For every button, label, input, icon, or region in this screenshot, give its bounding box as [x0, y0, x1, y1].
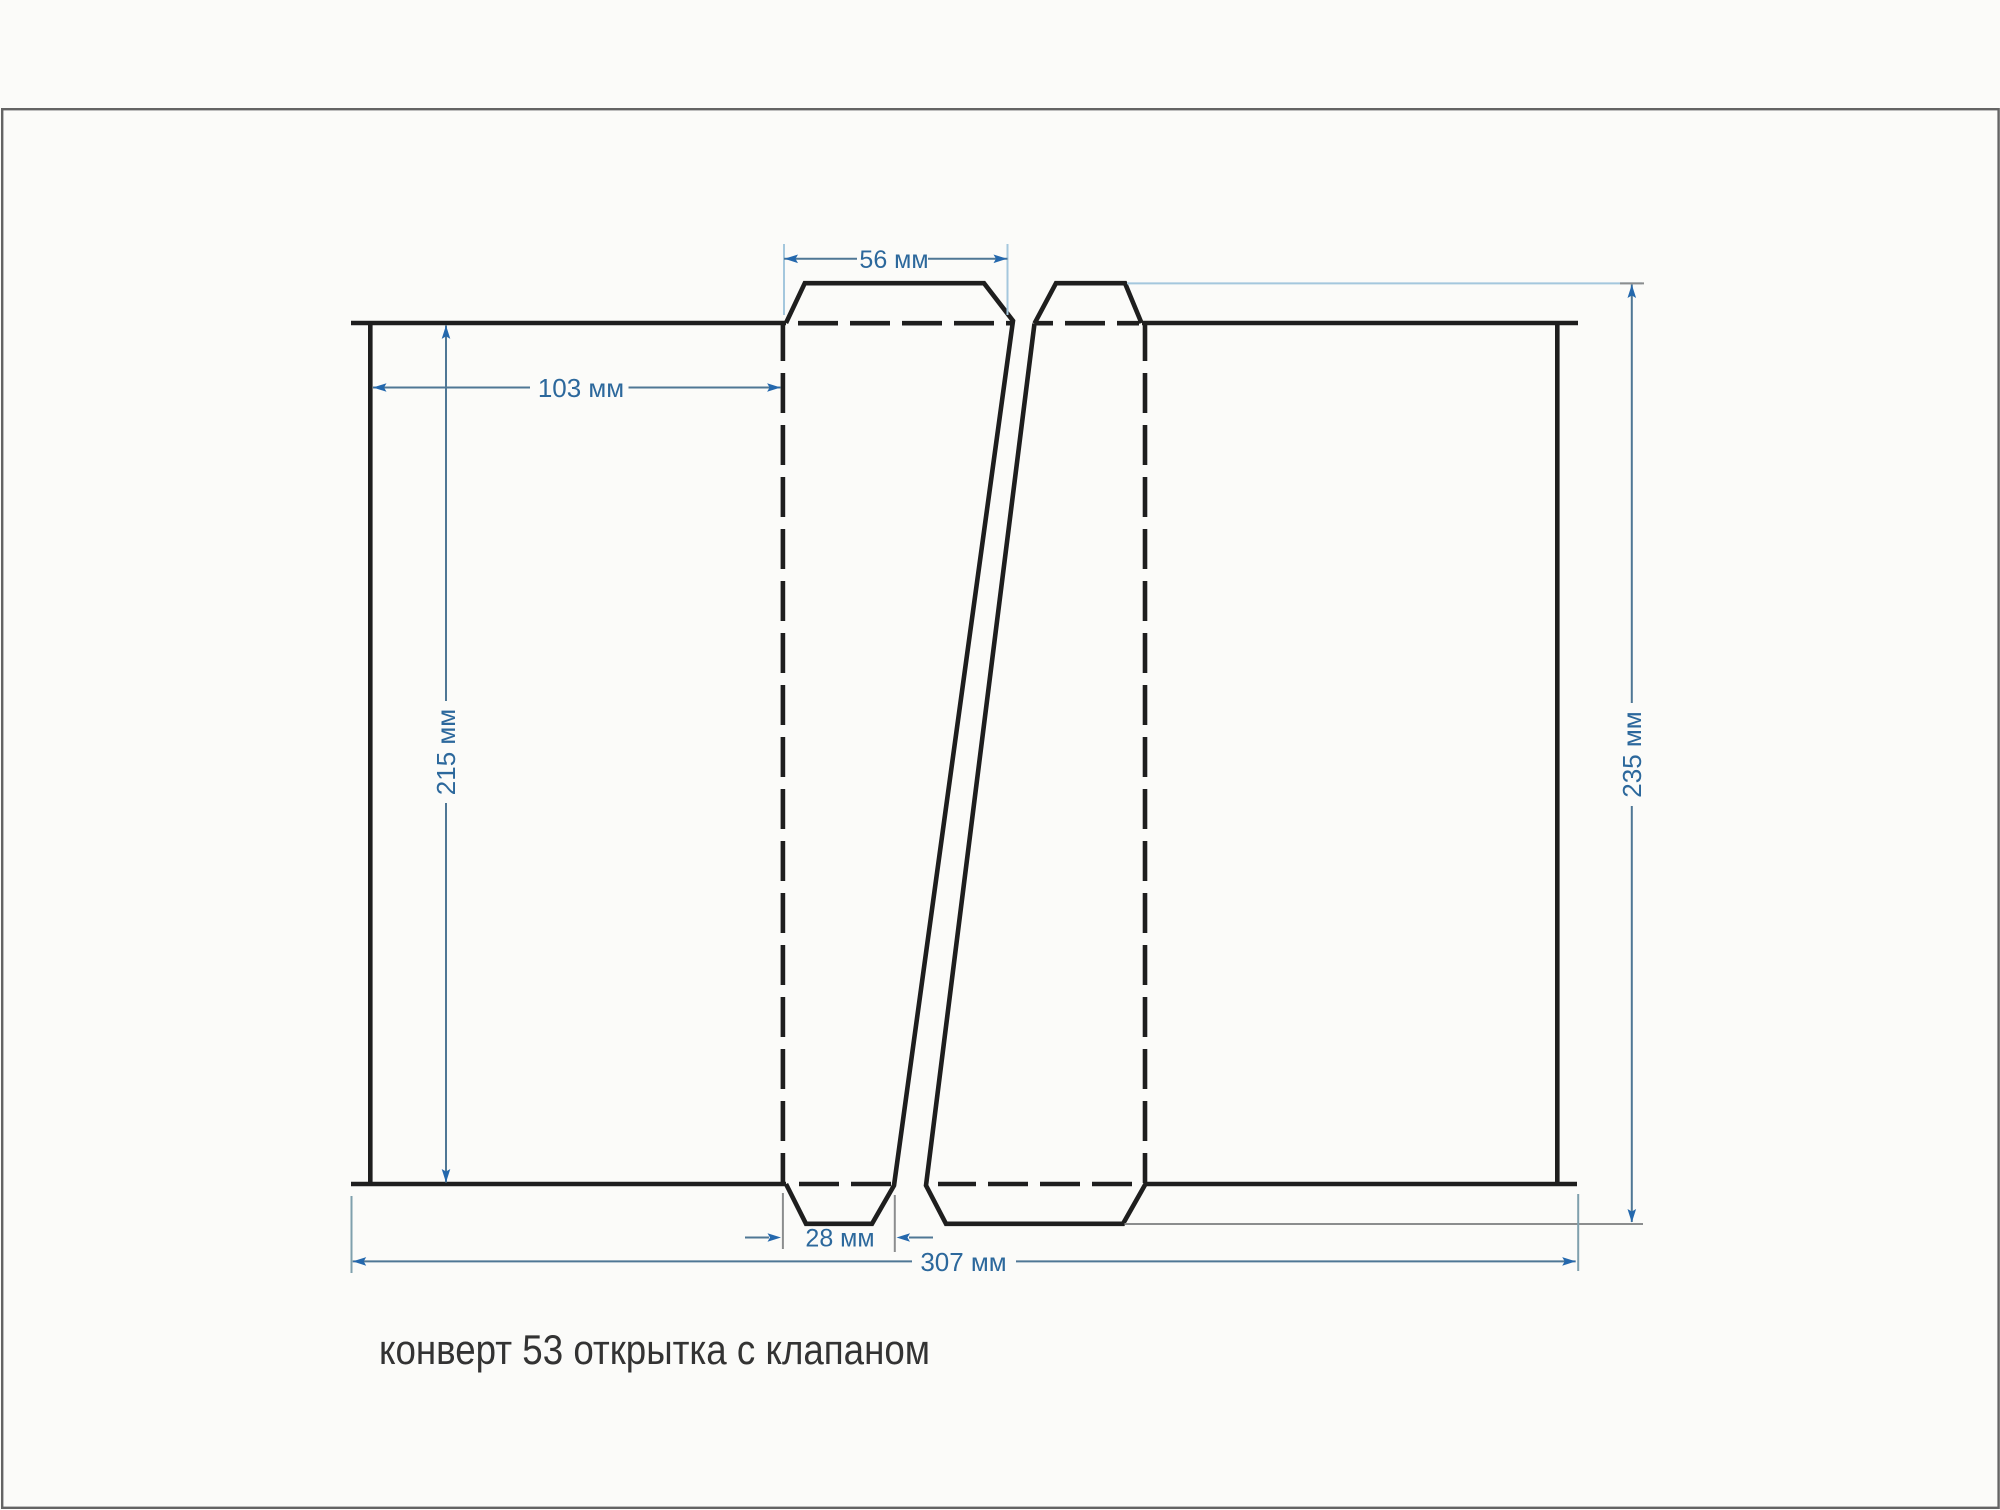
svg-text:28 мм: 28 мм — [805, 1225, 874, 1253]
svg-text:215 мм: 215 мм — [431, 709, 461, 795]
svg-text:235 мм: 235 мм — [1617, 711, 1647, 797]
svg-text:56 мм: 56 мм — [859, 246, 928, 274]
svg-text:307 мм: 307 мм — [920, 1247, 1006, 1277]
svg-text:103 мм: 103 мм — [538, 373, 624, 403]
svg-text:конверт 53 открытка с клапаном: конверт 53 открытка с клапаном — [379, 1326, 930, 1373]
